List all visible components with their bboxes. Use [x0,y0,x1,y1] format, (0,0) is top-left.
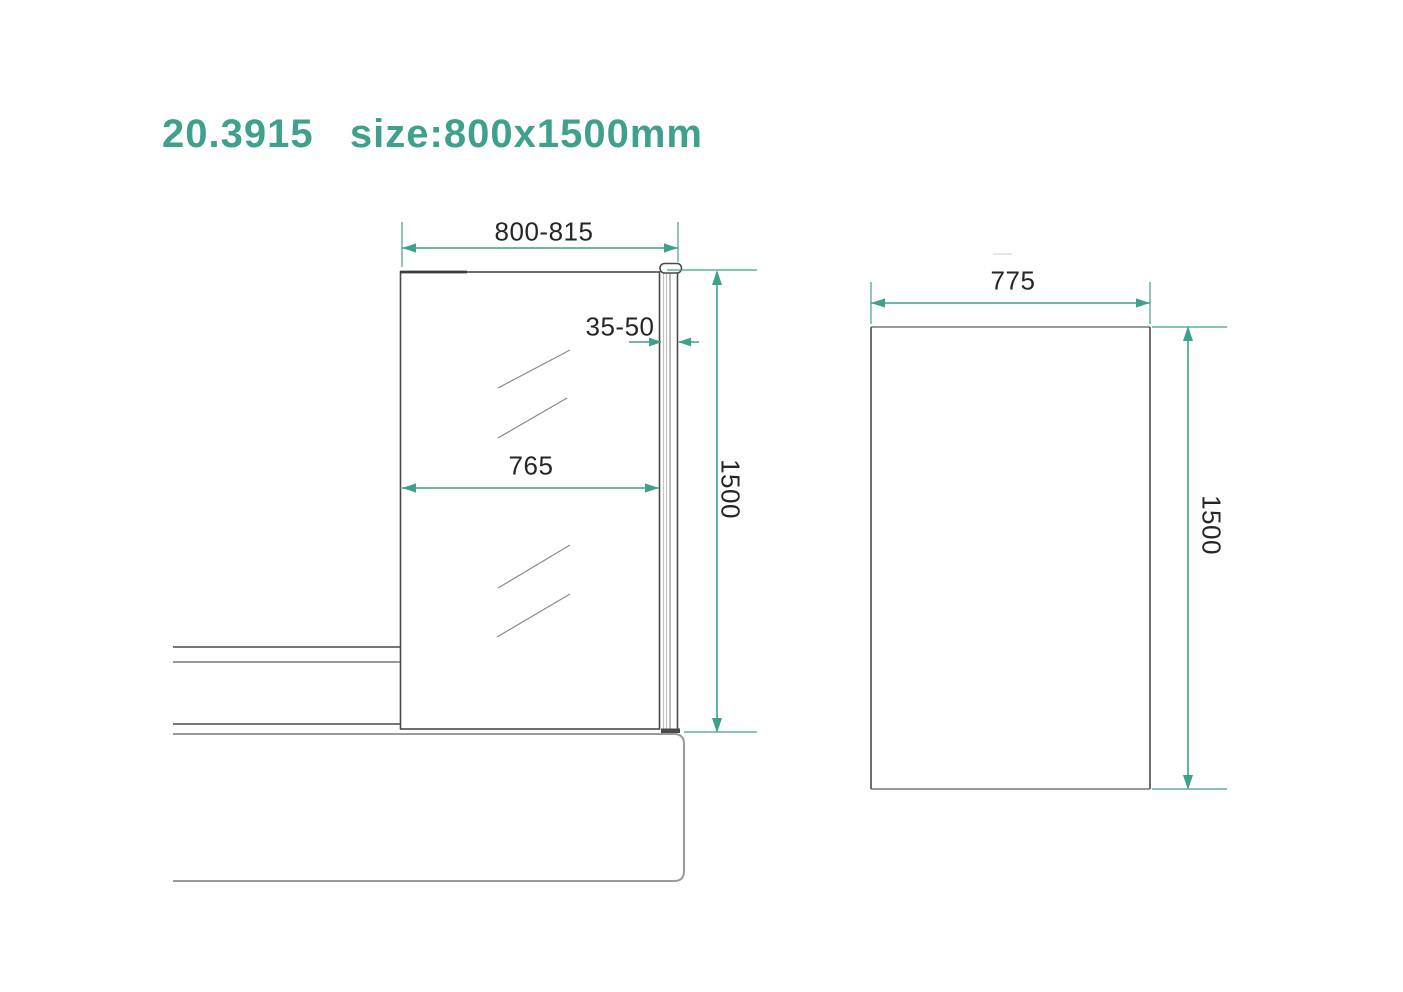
dim-side-height [1152,326,1227,790]
profile-top-cap [660,264,682,274]
dim-label-glass-width: 765 [509,451,554,482]
front-view [173,222,757,881]
dim-label-overall-width: 800-815 [495,217,594,248]
bathtub-outline [173,647,684,881]
wall-profile [660,264,682,734]
technical-drawing-page: 20.3915 size:800x1500mm [0,0,1403,992]
side-view [871,254,1227,790]
dim-label-profile-adjust: 35-50 [586,312,655,343]
dim-label-front-height: 1500 [715,459,746,519]
dim-label-side-width: 775 [991,266,1036,297]
profile-foot [661,729,680,734]
glass-hatch-marks [497,350,570,637]
drawing-canvas [0,0,1403,992]
dim-label-side-height: 1500 [1196,495,1227,555]
dim-glass-width [402,483,659,492]
side-glass-panel [871,254,1150,789]
